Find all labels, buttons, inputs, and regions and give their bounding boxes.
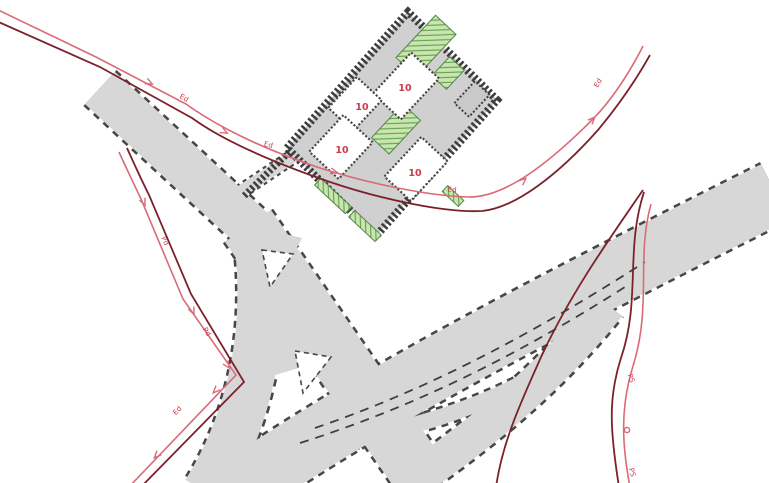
utility-label: Ed [263,140,274,150]
utility-label: PS [626,373,637,384]
utility-label: Ed [178,92,190,104]
plot-number-label: 10 [408,168,422,179]
utility-label: Ed [592,77,604,89]
plot-number-label: 10 [355,102,369,113]
site-plan-map: 10 10 10 10 [0,0,769,483]
node-marker-icon [624,427,629,432]
road-south [205,232,260,483]
site-plan-page: 10 10 10 10 [0,0,769,483]
plot-number-label: 10 [398,83,412,94]
plot-number-label: 10 [335,145,349,156]
utility-label: Ed [171,404,183,416]
building-compound: 10 10 10 10 [243,12,497,242]
utility-label: Ed [447,186,457,195]
